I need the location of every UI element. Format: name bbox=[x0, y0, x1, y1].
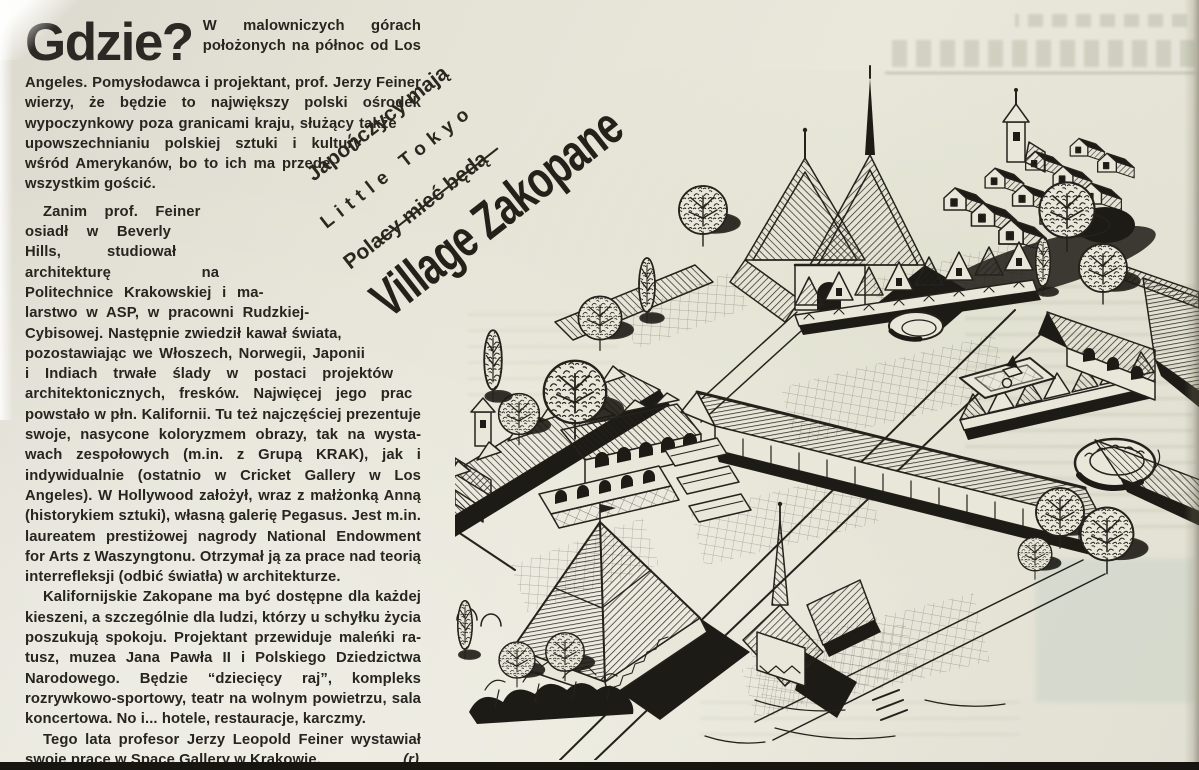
page-bottom-edge bbox=[0, 762, 1199, 770]
magazine-page: Gdzie? W malowniczych górach położo­nych… bbox=[0, 0, 1199, 770]
scan-corner-highlight bbox=[0, 0, 90, 60]
page-right-edge-shadow bbox=[1184, 0, 1199, 770]
ground-squiggles bbox=[705, 700, 1005, 743]
article-paragraph: Kalifornijskie Zakopane ma być dostępne … bbox=[25, 587, 421, 729]
village-illustration bbox=[455, 60, 1199, 760]
oval-pool bbox=[889, 312, 943, 340]
hamlet-church-tower bbox=[1003, 88, 1045, 172]
scan-left-edge bbox=[0, 0, 13, 420]
bleedthrough-text bbox=[1015, 14, 1187, 27]
